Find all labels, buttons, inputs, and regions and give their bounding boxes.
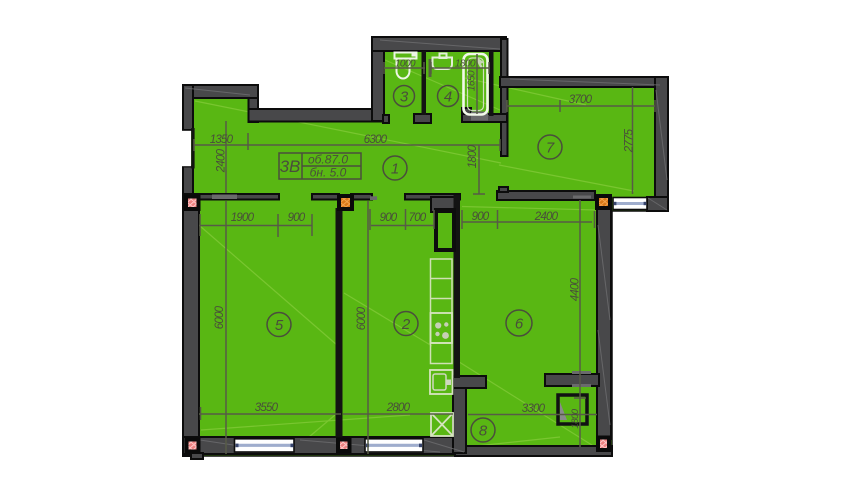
- svg-text:об.87.0: об.87.0: [308, 153, 348, 167]
- svg-text:бн. 5.0: бн. 5.0: [310, 166, 347, 180]
- svg-text:3700: 3700: [569, 94, 593, 106]
- svg-text:1800: 1800: [467, 144, 479, 168]
- svg-text:900: 900: [472, 211, 490, 223]
- svg-text:4400: 4400: [570, 277, 582, 301]
- svg-text:5: 5: [275, 317, 284, 334]
- svg-text:1900: 1900: [231, 212, 255, 224]
- svg-text:1350: 1350: [210, 134, 234, 146]
- svg-text:4: 4: [444, 89, 452, 106]
- svg-text:900: 900: [288, 212, 306, 224]
- svg-text:6: 6: [515, 316, 524, 333]
- svg-text:6000: 6000: [356, 306, 368, 330]
- svg-text:2400: 2400: [216, 148, 228, 173]
- svg-text:8: 8: [479, 423, 488, 440]
- svg-text:2800: 2800: [386, 402, 411, 414]
- svg-text:3300: 3300: [522, 403, 546, 415]
- svg-text:3550: 3550: [255, 402, 279, 414]
- svg-text:1800: 1800: [570, 408, 581, 428]
- svg-text:1650: 1650: [467, 70, 478, 91]
- svg-text:900: 900: [380, 212, 398, 224]
- svg-text:3: 3: [400, 89, 409, 106]
- svg-text:7: 7: [546, 140, 555, 157]
- svg-text:2400: 2400: [534, 211, 559, 223]
- svg-text:700: 700: [409, 212, 427, 224]
- svg-text:3В: 3В: [280, 157, 301, 176]
- svg-text:1800: 1800: [455, 59, 476, 70]
- svg-text:6000: 6000: [214, 305, 226, 329]
- svg-text:2775: 2775: [624, 128, 636, 153]
- svg-text:6300: 6300: [364, 134, 388, 146]
- svg-text:2: 2: [401, 316, 411, 333]
- svg-text:1000: 1000: [395, 59, 416, 70]
- svg-text:1: 1: [391, 161, 399, 178]
